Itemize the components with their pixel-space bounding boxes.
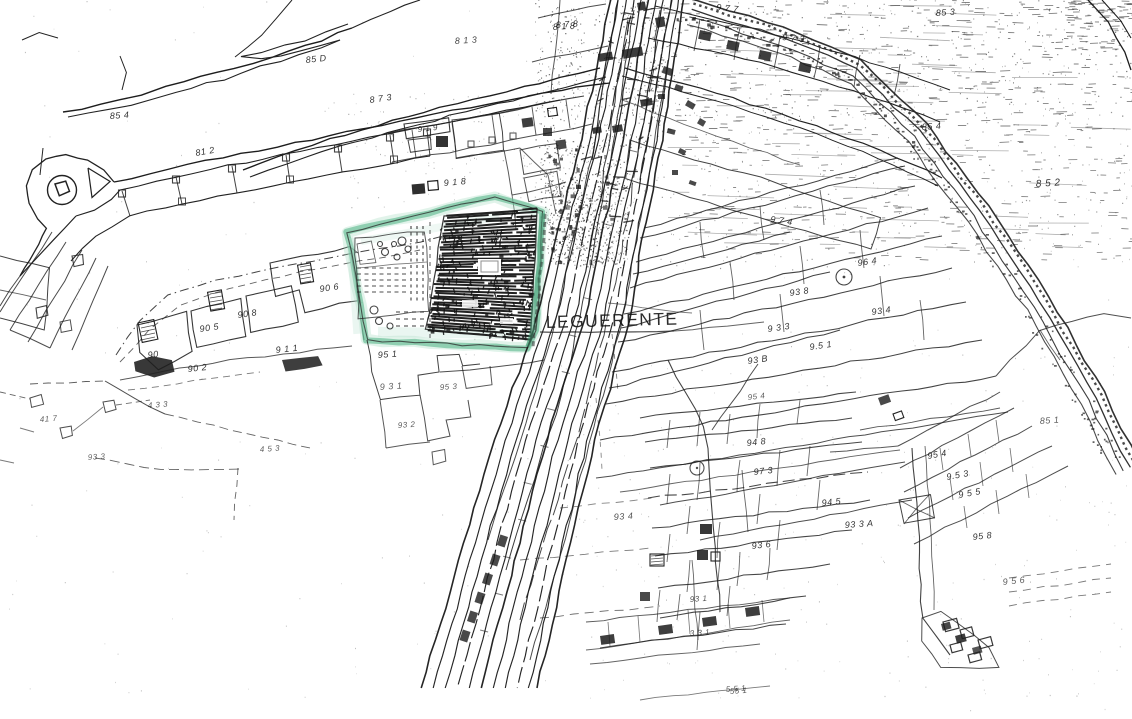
svg-text:4 3 3: 4 3 3 bbox=[148, 400, 169, 410]
svg-text:93 4: 93 4 bbox=[613, 511, 633, 522]
svg-text:97 3: 97 3 bbox=[753, 465, 773, 477]
svg-text:85 3: 85 3 bbox=[935, 7, 955, 18]
svg-text:93 3: 93 3 bbox=[88, 452, 106, 462]
svg-text:85 4: 85 4 bbox=[109, 110, 129, 121]
svg-text:85 1: 85 1 bbox=[1039, 415, 1059, 426]
svg-text:95 3: 95 3 bbox=[440, 382, 458, 392]
svg-text:4 5 3: 4 5 3 bbox=[260, 444, 281, 454]
svg-text:95 8: 95 8 bbox=[972, 530, 992, 542]
svg-text:93 6: 93 6 bbox=[751, 539, 771, 551]
svg-text:LEGUERENTE: LEGUERENTE bbox=[546, 309, 679, 332]
svg-text:93 1: 93 1 bbox=[690, 594, 708, 604]
svg-text:41 7: 41 7 bbox=[40, 414, 58, 424]
svg-text:93 3 A: 93 3 A bbox=[844, 518, 873, 530]
svg-text:93 2: 93 2 bbox=[398, 420, 416, 430]
svg-text:85 4: 85 4 bbox=[921, 121, 941, 132]
svg-text:55 1: 55 1 bbox=[730, 686, 748, 696]
svg-text:95 4: 95 4 bbox=[747, 391, 765, 402]
svg-text:8 7 8: 8 7 8 bbox=[555, 18, 578, 30]
svg-text:90 2: 90 2 bbox=[187, 362, 207, 374]
svg-text:9 1 8: 9 1 8 bbox=[443, 176, 466, 188]
svg-text:3 3 1: 3 3 1 bbox=[690, 628, 711, 638]
svg-text:8 1 3: 8 1 3 bbox=[454, 34, 477, 46]
svg-text:8 5 2: 8 5 2 bbox=[1035, 177, 1060, 190]
svg-text:95 1: 95 1 bbox=[377, 349, 397, 360]
svg-text:94 8: 94 8 bbox=[746, 436, 766, 448]
svg-text:9 3 1: 9 3 1 bbox=[379, 380, 402, 392]
svg-text:94 5: 94 5 bbox=[821, 496, 842, 508]
